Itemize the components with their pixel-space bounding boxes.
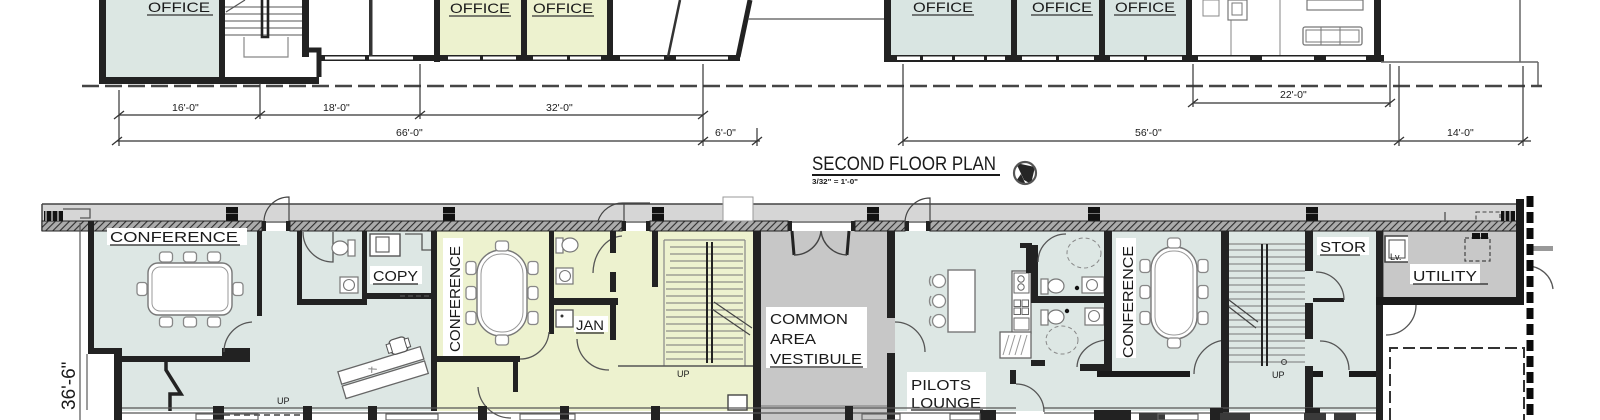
svg-text:66'-0": 66'-0" [396, 127, 423, 139]
svg-text:OFFICE: OFFICE [533, 0, 593, 16]
svg-text:SECOND FLOOR PLAN: SECOND FLOOR PLAN [812, 153, 996, 175]
svg-text:32'-0": 32'-0" [546, 102, 573, 114]
svg-text:OFFICE: OFFICE [1115, 0, 1175, 15]
svg-text:COMMON: COMMON [770, 312, 848, 328]
svg-text:6'-0": 6'-0" [715, 127, 736, 139]
svg-text:UTILITY: UTILITY [1413, 268, 1477, 285]
svg-text:56'-0": 56'-0" [1135, 127, 1162, 139]
svg-text:14'-0": 14'-0" [1447, 127, 1474, 139]
svg-text:Lv.: Lv. [1390, 252, 1401, 262]
svg-text:36'-6": 36'-6" [59, 362, 80, 410]
svg-text:CONFERENCE: CONFERENCE [448, 246, 464, 352]
svg-text:16'-0": 16'-0" [172, 102, 199, 114]
svg-text:OFFICE: OFFICE [450, 0, 510, 16]
svg-text:AREA: AREA [770, 332, 816, 348]
svg-text:PILOTS: PILOTS [911, 377, 971, 394]
svg-text:CONFERENCE: CONFERENCE [110, 230, 238, 246]
svg-text:CONFERENCE: CONFERENCE [1121, 246, 1137, 358]
svg-text:UP: UP [277, 396, 290, 406]
svg-text:UP: UP [677, 369, 690, 379]
svg-text:VESTIBULE: VESTIBULE [770, 352, 862, 368]
svg-text:OFFICE: OFFICE [913, 0, 973, 15]
svg-text:22'-0": 22'-0" [1280, 89, 1307, 101]
svg-text:OFFICE: OFFICE [148, 0, 210, 15]
svg-text:3/32" = 1'-0": 3/32" = 1'-0" [812, 177, 858, 186]
svg-text:UP: UP [1272, 370, 1285, 380]
svg-text:STOR: STOR [1320, 240, 1366, 256]
svg-text:JAN: JAN [576, 317, 604, 333]
svg-text:18'-0": 18'-0" [323, 102, 350, 114]
svg-text:COPY: COPY [373, 269, 418, 285]
svg-text:OFFICE: OFFICE [1032, 0, 1092, 15]
